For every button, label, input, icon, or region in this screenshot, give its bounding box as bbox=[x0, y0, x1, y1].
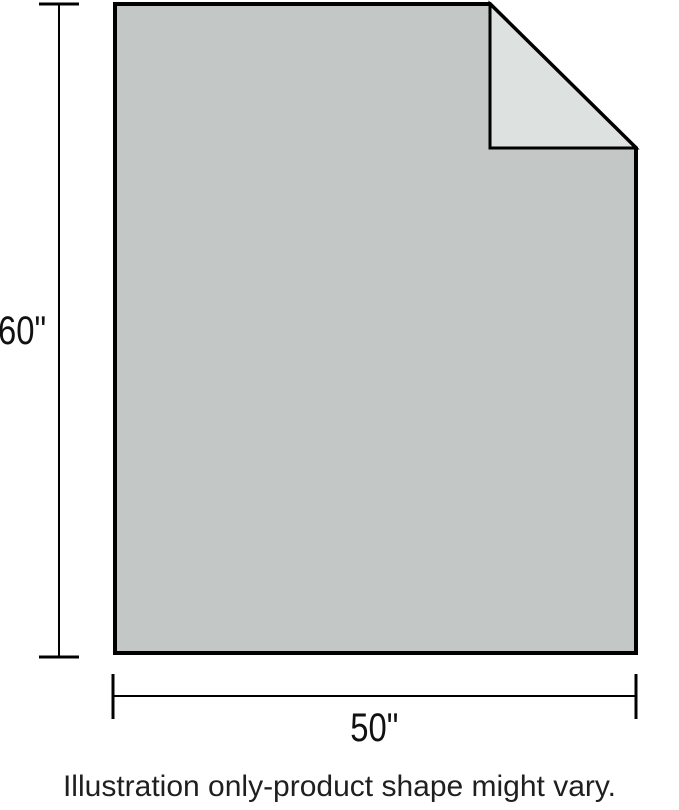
caption-text: Illustration only-product shape might va… bbox=[0, 770, 679, 804]
dimension-diagram-canvas bbox=[0, 0, 679, 810]
product-dimension-diagram: 60" 50" Illustration only-product shape … bbox=[0, 0, 679, 810]
folded-corner-flap bbox=[490, 4, 636, 148]
width-dimension-label-wrap: 50" bbox=[113, 708, 636, 748]
height-dimension-label: 60" bbox=[0, 311, 46, 351]
width-dimension-label: 50" bbox=[350, 708, 398, 748]
